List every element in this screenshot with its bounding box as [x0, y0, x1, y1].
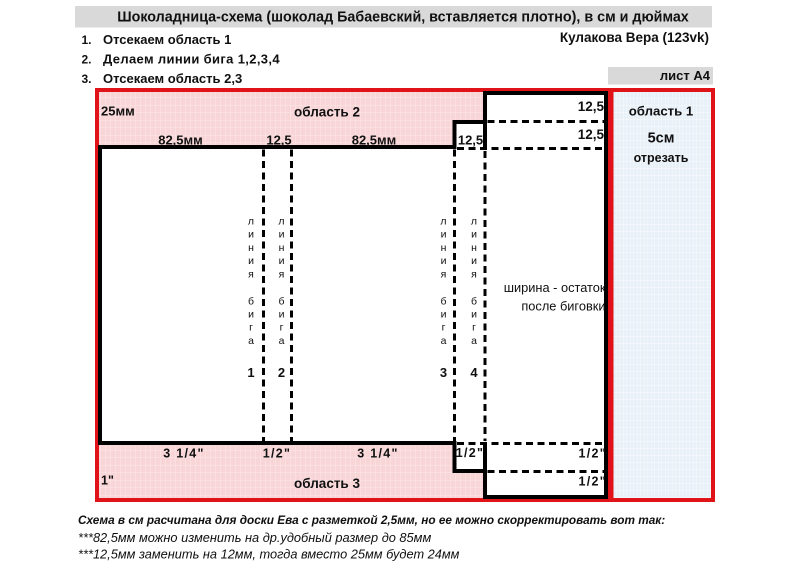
svg-text:б: б	[440, 295, 446, 307]
svg-text:3: 3	[440, 365, 447, 380]
svg-text:и: и	[248, 255, 254, 267]
svg-text:2: 2	[278, 365, 285, 380]
svg-text:и: и	[441, 229, 447, 241]
svg-text:***82,5мм можно изменить на др: ***82,5мм можно изменить на др.удобный р…	[78, 530, 431, 545]
svg-text:а: а	[248, 335, 254, 347]
svg-text:Отсекаем область 1: Отсекаем область 1	[103, 32, 231, 47]
svg-text:3.: 3.	[81, 72, 91, 86]
svg-text:н: н	[471, 242, 477, 254]
svg-text:2.: 2.	[81, 53, 91, 67]
svg-text:я: я	[471, 268, 477, 280]
svg-text:и: и	[279, 309, 285, 321]
svg-text:1/2": 1/2"	[263, 447, 292, 461]
svg-text:1/2": 1/2"	[578, 447, 607, 461]
svg-text:и: и	[441, 255, 447, 267]
svg-text:г: г	[472, 322, 476, 334]
svg-text:после биговки: после биговки	[521, 299, 605, 314]
svg-text:Шоколадница-схема (шоколад Баб: Шоколадница-схема (шоколад Бабаевский, в…	[117, 10, 689, 26]
svg-text:и: и	[248, 229, 254, 241]
svg-text:4: 4	[470, 365, 478, 380]
svg-text:б: б	[248, 295, 254, 307]
svg-text:л: л	[248, 216, 254, 228]
svg-text:н: н	[441, 242, 447, 254]
svg-text:л: л	[278, 216, 284, 228]
svg-text:и: и	[279, 255, 285, 267]
svg-text:а: а	[441, 335, 447, 347]
svg-text:Схема в см расчитана для доски: Схема в см расчитана для доски Ева с раз…	[78, 513, 665, 527]
svg-text:1": 1"	[101, 474, 114, 488]
svg-text:г: г	[249, 322, 253, 334]
svg-text:я: я	[279, 268, 285, 280]
svg-text:3 1/4": 3 1/4"	[357, 447, 399, 461]
svg-text:и: и	[471, 229, 477, 241]
svg-text:1/2": 1/2"	[578, 475, 607, 489]
svg-text:1/2": 1/2"	[456, 446, 485, 460]
svg-text:г: г	[442, 322, 446, 334]
svg-text:отрезать: отрезать	[634, 151, 689, 165]
svg-text:12,5: 12,5	[578, 127, 605, 142]
svg-text:л: л	[471, 216, 477, 228]
svg-text:***12,5мм заменить на 12мм, то: ***12,5мм заменить на 12мм, тогда вместо…	[78, 547, 460, 562]
svg-text:1.: 1.	[81, 33, 91, 47]
svg-text:г: г	[280, 322, 284, 334]
svg-text:а: а	[279, 335, 285, 347]
svg-text:Делаем линии бига 1,2,3,4: Делаем линии бига 1,2,3,4	[103, 52, 280, 67]
svg-text:и: и	[441, 309, 447, 321]
svg-text:область 3: область 3	[294, 476, 361, 491]
svg-text:82,5мм: 82,5мм	[158, 133, 203, 148]
svg-text:я: я	[441, 268, 447, 280]
svg-text:Кулакова Вера (123vk): Кулакова Вера (123vk)	[560, 30, 709, 45]
svg-text:5см: 5см	[648, 131, 675, 147]
svg-text:и: и	[248, 309, 254, 321]
svg-text:б: б	[471, 295, 477, 307]
svg-text:и: и	[279, 229, 285, 241]
svg-text:б: б	[278, 295, 284, 307]
svg-text:область 1: область 1	[629, 104, 693, 119]
svg-text:н: н	[279, 242, 285, 254]
svg-text:12,5: 12,5	[266, 133, 291, 148]
svg-text:и: и	[471, 309, 477, 321]
svg-text:25мм: 25мм	[101, 104, 135, 119]
svg-text:н: н	[248, 242, 254, 254]
svg-text:12,5: 12,5	[458, 133, 483, 148]
svg-text:3 1/4": 3 1/4"	[163, 447, 205, 461]
svg-text:я: я	[248, 268, 254, 280]
svg-text:Отсекаем область 2,3: Отсекаем область 2,3	[103, 71, 242, 86]
svg-text:область 2: область 2	[294, 105, 360, 120]
svg-text:82,5мм: 82,5мм	[352, 133, 397, 148]
svg-text:и: и	[471, 255, 477, 267]
svg-text:л: л	[440, 216, 446, 228]
svg-text:12,5: 12,5	[578, 99, 605, 114]
svg-text:ширина - остаток: ширина - остаток	[504, 280, 606, 295]
svg-text:1: 1	[247, 365, 254, 380]
svg-text:лист А4: лист А4	[660, 68, 711, 83]
svg-text:а: а	[471, 335, 477, 347]
